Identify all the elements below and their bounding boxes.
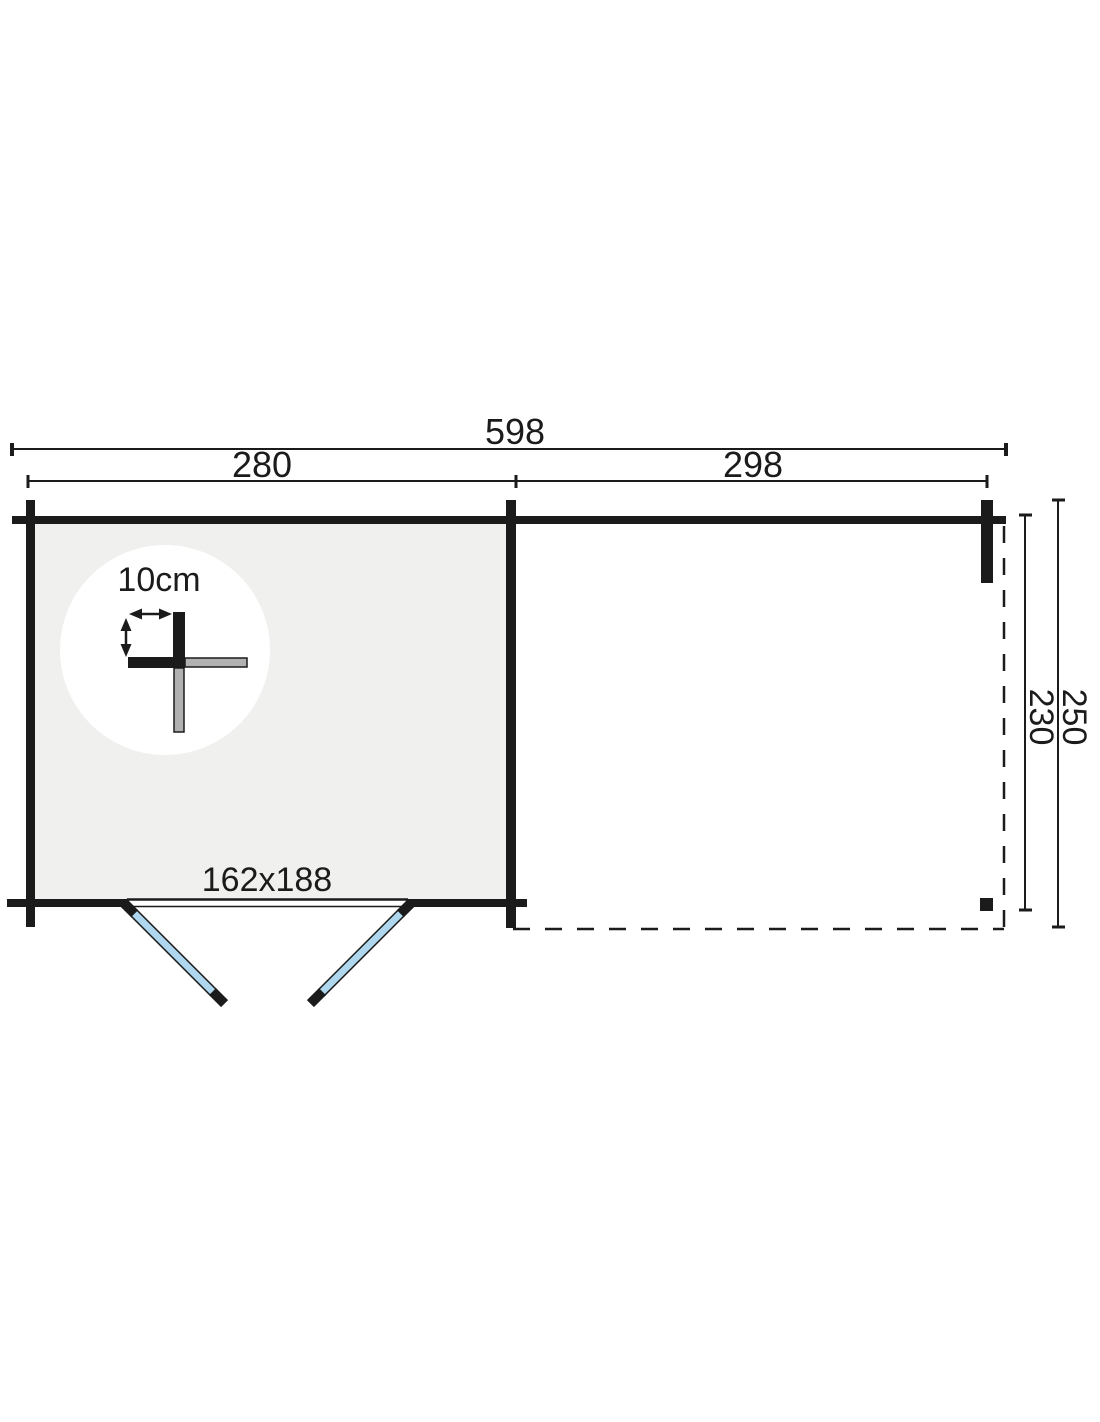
total-width-label: 598 (485, 411, 545, 452)
log-black-left (128, 657, 185, 668)
canopy-outline (513, 526, 1004, 929)
total-depth-label: 250 (1055, 689, 1093, 746)
dimension-total-depth: 250 (1052, 500, 1093, 927)
rear-wall-left-of-door (7, 899, 127, 907)
canopy-width-label: 298 (723, 444, 783, 485)
wall-thickness-label: 10cm (117, 561, 200, 599)
wall-detail-callout: 10cm (60, 545, 270, 755)
door-leaf-left-panel (131, 910, 216, 995)
middle-wall (506, 500, 516, 928)
floor-plan-page: 598 280 298 230 2 (0, 0, 1100, 1422)
door-leaf-left (120, 899, 228, 1007)
left-wall (26, 500, 35, 927)
door-leaf-right (307, 899, 415, 1007)
dimension-total-width: 598 (12, 411, 1006, 456)
canopy-front-post (981, 500, 993, 583)
door-size-label: 162x188 (202, 861, 332, 899)
dimension-canopy-width: 298 (516, 444, 987, 488)
log-gray-down (174, 668, 184, 732)
cabin-width-label: 280 (232, 444, 292, 485)
log-gray-right (185, 658, 247, 667)
rear-wall-right-of-door (408, 899, 527, 907)
dimension-inner-depth: 230 (1019, 515, 1060, 910)
canopy-rear-post (980, 898, 993, 911)
door-leaf-right-panel (319, 910, 404, 995)
dimension-cabin-width: 280 (28, 444, 516, 488)
inner-depth-label: 230 (1022, 689, 1060, 746)
floor-plan-diagram: 598 280 298 230 2 (0, 0, 1100, 1422)
